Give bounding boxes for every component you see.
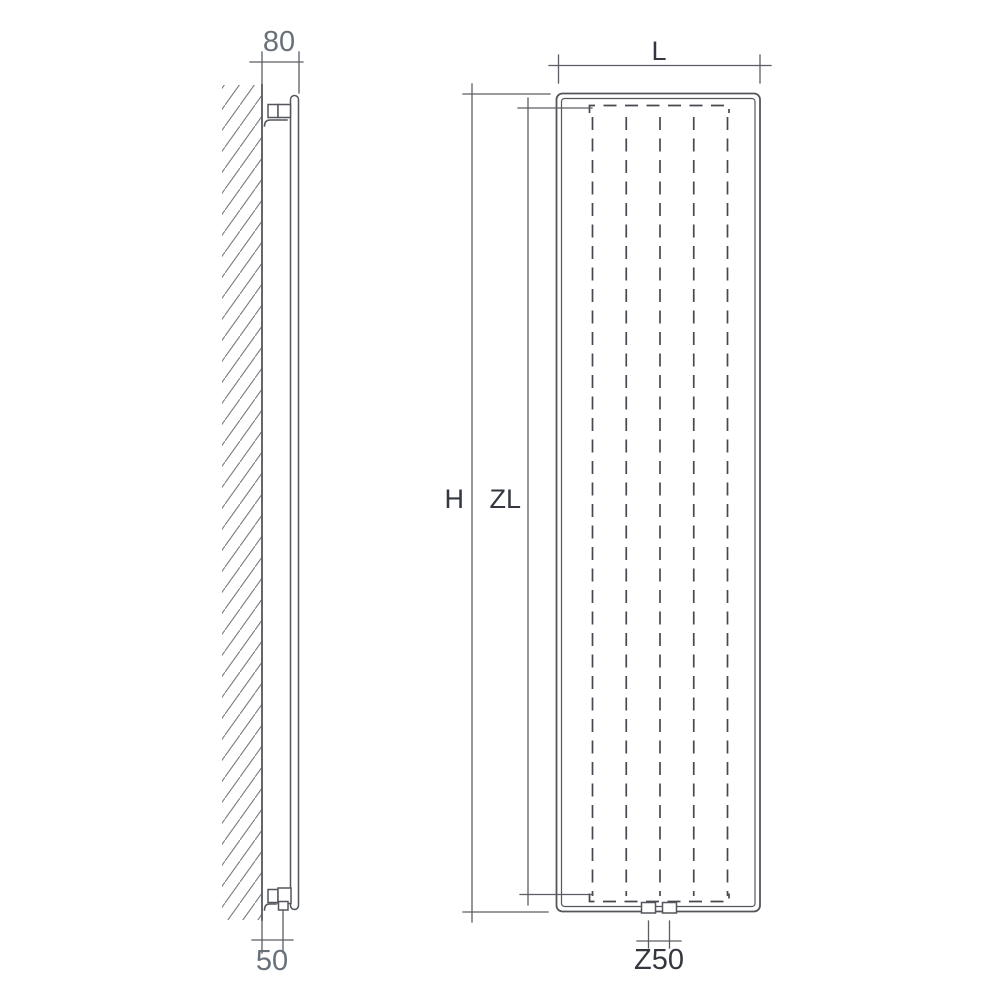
bracket-hook — [265, 904, 277, 910]
dim-label-Z50: Z50 — [634, 944, 684, 976]
bracket-hook — [265, 120, 288, 126]
dim-label-80: 80 — [263, 26, 295, 58]
dim-connection-offset-50: 50 — [252, 910, 293, 977]
bracket-block — [278, 105, 291, 118]
side-view: 80 50 — [222, 26, 303, 977]
dim-label-50: 50 — [256, 945, 288, 977]
dim-connection-Z50: Z50 — [634, 921, 684, 976]
bottom-mounting-bracket — [265, 888, 292, 910]
front-view: L H ZL Z50 — [445, 36, 772, 976]
drawing-canvas: 80 50 — [0, 0, 1000, 1000]
dim-label-ZL: ZL — [489, 484, 521, 514]
bracket-block — [268, 890, 278, 903]
wall-hatch — [222, 85, 262, 920]
dim-label-H: H — [445, 484, 465, 514]
radiator-outer-outline — [557, 94, 761, 912]
radiator-panel-side — [291, 96, 299, 910]
dim-depth-80: 80 — [250, 26, 303, 93]
dim-width-L: L — [549, 36, 771, 83]
dim-label-L: L — [651, 36, 666, 66]
top-mounting-bracket — [265, 105, 291, 127]
nozzle — [663, 903, 677, 914]
radiator-technical-drawing: 80 50 — [0, 0, 1000, 1000]
connection-foot — [279, 902, 289, 911]
nozzle — [642, 903, 656, 914]
bracket-block — [268, 105, 278, 118]
